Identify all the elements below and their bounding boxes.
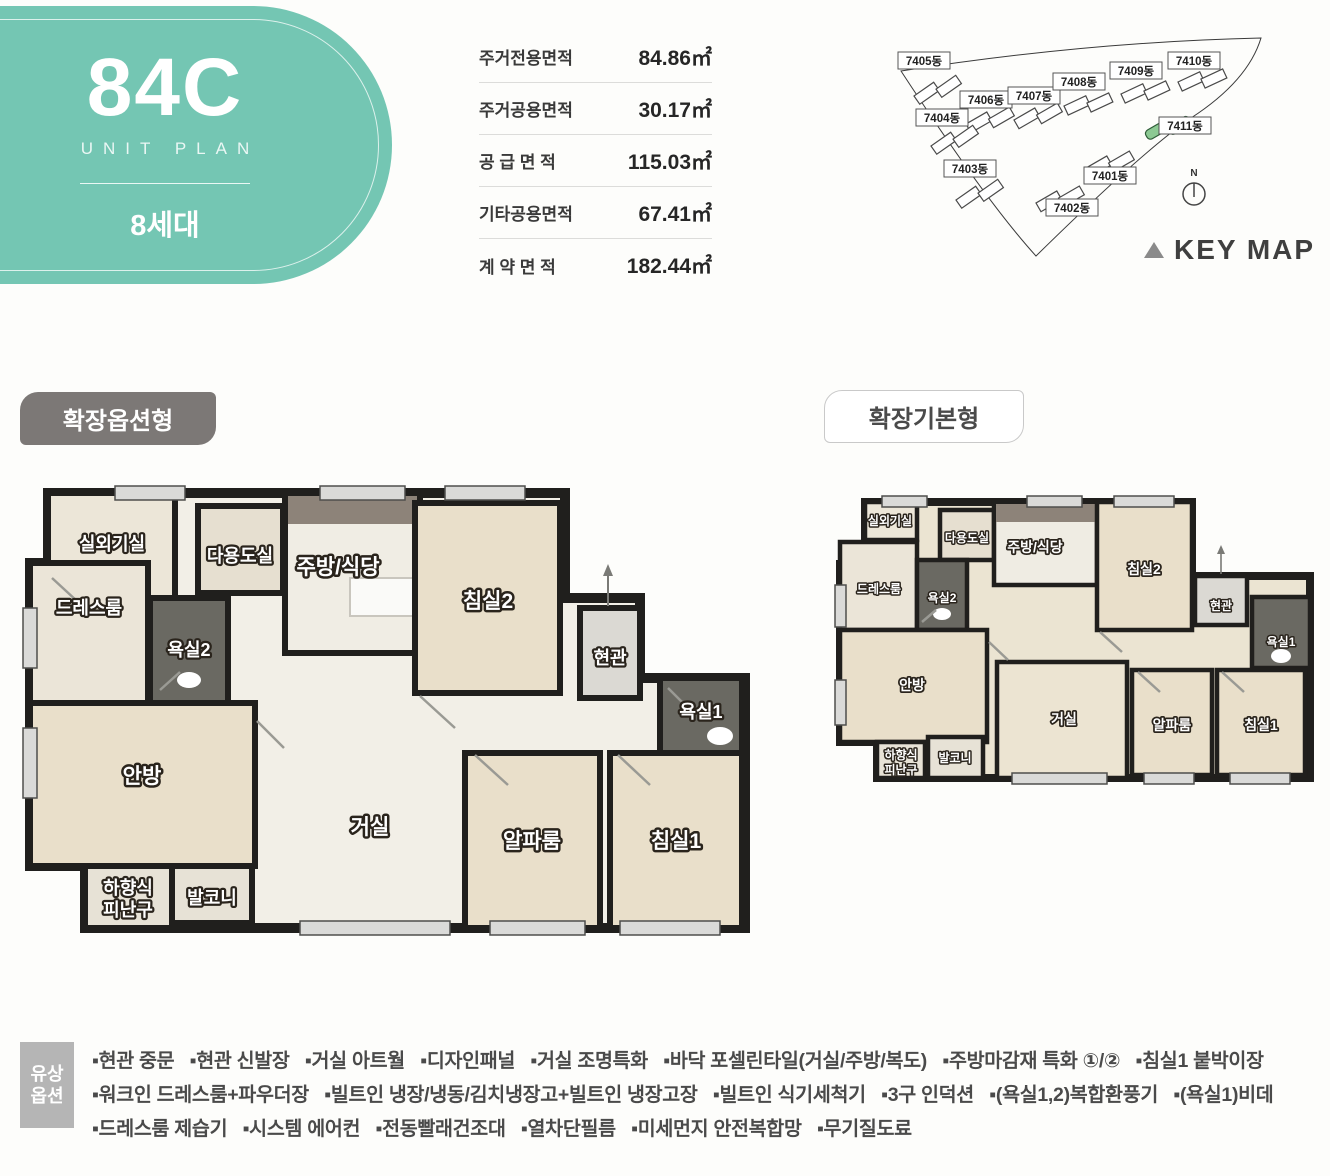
site-key-map: 7405동 7406동 7407동 7408동 7409동 7410동 7404… — [886, 16, 1330, 282]
area-row-value: 67.41㎡ — [638, 198, 712, 228]
paid-options-list: ▪현관 중문 ▪현관 신발장 ▪거실 아트월 ▪디자인패널 ▪거실 조명특화 ▪… — [92, 1042, 1273, 1146]
area-row-label: 공 급 면 적 — [479, 148, 556, 173]
unit-code: 84C — [87, 47, 243, 129]
room-label-alpha: 알파룸 — [503, 830, 561, 853]
building-label: 7405동 — [906, 55, 943, 68]
building-label: 7406동 — [968, 94, 1005, 107]
building-label: 7403동 — [952, 163, 989, 176]
room-label-master: 안방 — [123, 765, 162, 788]
area-row: 주거공용면적 30.17㎡ — [479, 83, 712, 135]
room-label-entrance: 현관 — [593, 648, 627, 668]
plan-type-badge-extended-basic: 확장기본형 — [824, 390, 1024, 443]
area-row: 공 급 면 적 115.03㎡ — [479, 135, 712, 187]
room-label-bathroom2: 욕실2 — [928, 590, 957, 605]
room-label-alpha: 알파룸 — [1153, 717, 1192, 733]
room-label-living: 거실 — [351, 816, 390, 839]
room-label-balcony: 발코니 — [187, 888, 237, 908]
room-label-escape-line2: 피난구 — [103, 900, 153, 920]
room-label-bedroom2: 침실2 — [463, 590, 513, 613]
room-label-bedroom1: 침실1 — [1244, 717, 1278, 733]
area-row-label: 주거전용면적 — [479, 44, 573, 69]
plan-type-badge-extended-option: 확장옵션형 — [20, 392, 216, 445]
room-label-bathroom1: 욕실1 — [679, 702, 722, 722]
area-row: 기타공용면적 67.41㎡ — [479, 187, 712, 239]
building-label: 7411동 — [1167, 120, 1203, 133]
floor-plan-option-svg: 실외기실 다용도실 주방/식당 침실2 현관 욕실1 드레스룸 욕실2 안방 거… — [20, 478, 765, 970]
paid-options-title-box: 유상 옵션 — [20, 1042, 74, 1128]
room-label-balcony: 발코니 — [938, 750, 971, 765]
unit-subtitle: UNIT PLAN — [71, 139, 260, 159]
badge-divider — [80, 183, 250, 184]
room-label-living: 거실 — [1051, 711, 1077, 727]
room-label-entrance: 현관 — [1210, 598, 1232, 613]
room-label-bedroom2: 침실2 — [1127, 561, 1161, 577]
keymap-triangle-icon — [1144, 242, 1164, 258]
paid-options-line: ▪현관 중문 ▪현관 신발장 ▪거실 아트월 ▪디자인패널 ▪거실 조명특화 ▪… — [92, 1044, 1273, 1078]
unit-households: 8세대 — [130, 202, 200, 244]
toilet-fixture — [707, 727, 733, 745]
floor-plan-basic-svg: 실외기실 다용도실 주방/식당 침실2 현관 욕실1 드레스룸 욕실2 안방 거… — [822, 490, 1322, 790]
room-label-outdoor-unit: 실외기실 — [868, 513, 912, 528]
building-label: 7409동 — [1118, 65, 1155, 78]
room-label-kitchen: 주방/식당 — [296, 556, 379, 579]
room-label-escape-line1: 하향식 — [103, 878, 153, 898]
kitchen-island — [350, 578, 420, 616]
building-label: 7402동 — [1054, 202, 1091, 215]
paid-options-line: ▪드레스룸 제습기 ▪시스템 에어컨 ▪전동빨래건조대 ▪열차단필름 ▪미세먼지… — [92, 1112, 1273, 1146]
toilet-fixture — [177, 672, 201, 688]
paid-options-title-line1: 유상 — [30, 1063, 63, 1086]
paid-options-line: ▪워크인 드레스룸+파우더장 ▪빌트인 냉장/냉동/김치냉장고+빌트인 냉장고장… — [92, 1078, 1273, 1112]
keymap-caption: KEY MAP — [1144, 234, 1315, 265]
unit-plan-badge: 84C UNIT PLAN 8세대 — [0, 6, 392, 284]
area-row-value: 182.44㎡ — [627, 250, 712, 280]
area-row: 계 약 면 적 182.44㎡ — [479, 239, 712, 291]
building-label: 7410동 — [1176, 55, 1213, 68]
compass-icon: N — [1183, 168, 1205, 205]
building-label: 7404동 — [924, 112, 961, 125]
room-label-escape-line1: 하향식 — [884, 747, 917, 762]
area-row-value: 30.17㎡ — [638, 94, 712, 124]
room-label-master: 안방 — [899, 677, 925, 693]
key-map-svg: 7405동 7406동 7407동 7408동 7409동 7410동 7404… — [886, 16, 1330, 282]
floor-plan-extended-basic: 실외기실 다용도실 주방/식당 침실2 현관 욕실1 드레스룸 욕실2 안방 거… — [822, 490, 1322, 790]
paid-options-section: 유상 옵션 ▪현관 중문 ▪현관 신발장 ▪거실 아트월 ▪디자인패널 ▪거실 … — [20, 1042, 1320, 1146]
area-spec-table: 주거전용면적 84.86㎡ 주거공용면적 30.17㎡ 공 급 면 적 115.… — [479, 31, 712, 291]
keymap-caption-text: KEY MAP — [1174, 234, 1315, 265]
entrance-arrow-icon — [1217, 545, 1225, 574]
room-label-bedroom1: 침실1 — [651, 830, 702, 853]
room-label-escape-line2: 피난구 — [884, 762, 917, 777]
site-boundary — [901, 38, 1261, 256]
room-label-bathroom1: 욕실1 — [1267, 634, 1296, 649]
building-label: 7407동 — [1016, 90, 1053, 103]
building-labels: 7405동 7406동 7407동 7408동 7409동 7410동 7404… — [898, 52, 1220, 216]
area-row-label: 주거공용면적 — [479, 96, 573, 121]
room-label-dressroom: 드레스룸 — [857, 581, 901, 596]
floor-plan-extended-option: 실외기실 다용도실 주방/식당 침실2 현관 욕실1 드레스룸 욕실2 안방 거… — [20, 478, 765, 970]
area-row: 주거전용면적 84.86㎡ — [479, 31, 712, 83]
area-row-label: 기타공용면적 — [479, 200, 573, 225]
room-label-bathroom2: 욕실2 — [167, 640, 210, 660]
paid-options-title-line2: 옵션 — [30, 1085, 63, 1108]
room-label-utility: 다용도실 — [945, 530, 989, 545]
room-dressroom — [30, 563, 148, 703]
room-label-kitchen: 주방/식당 — [1007, 539, 1063, 555]
room-label-utility: 다용도실 — [207, 546, 273, 566]
building-label: 7408동 — [1061, 76, 1098, 89]
compass-n-label: N — [1190, 168, 1197, 179]
building-label: 7401동 — [1092, 170, 1129, 183]
room-label-dressroom: 드레스룸 — [56, 598, 122, 618]
area-row-value: 84.86㎡ — [638, 42, 712, 72]
area-row-label: 계 약 면 적 — [479, 253, 556, 278]
toilet-fixture — [1271, 649, 1291, 663]
room-label-outdoor-unit: 실외기실 — [79, 534, 145, 554]
area-row-value: 115.03㎡ — [628, 146, 712, 176]
